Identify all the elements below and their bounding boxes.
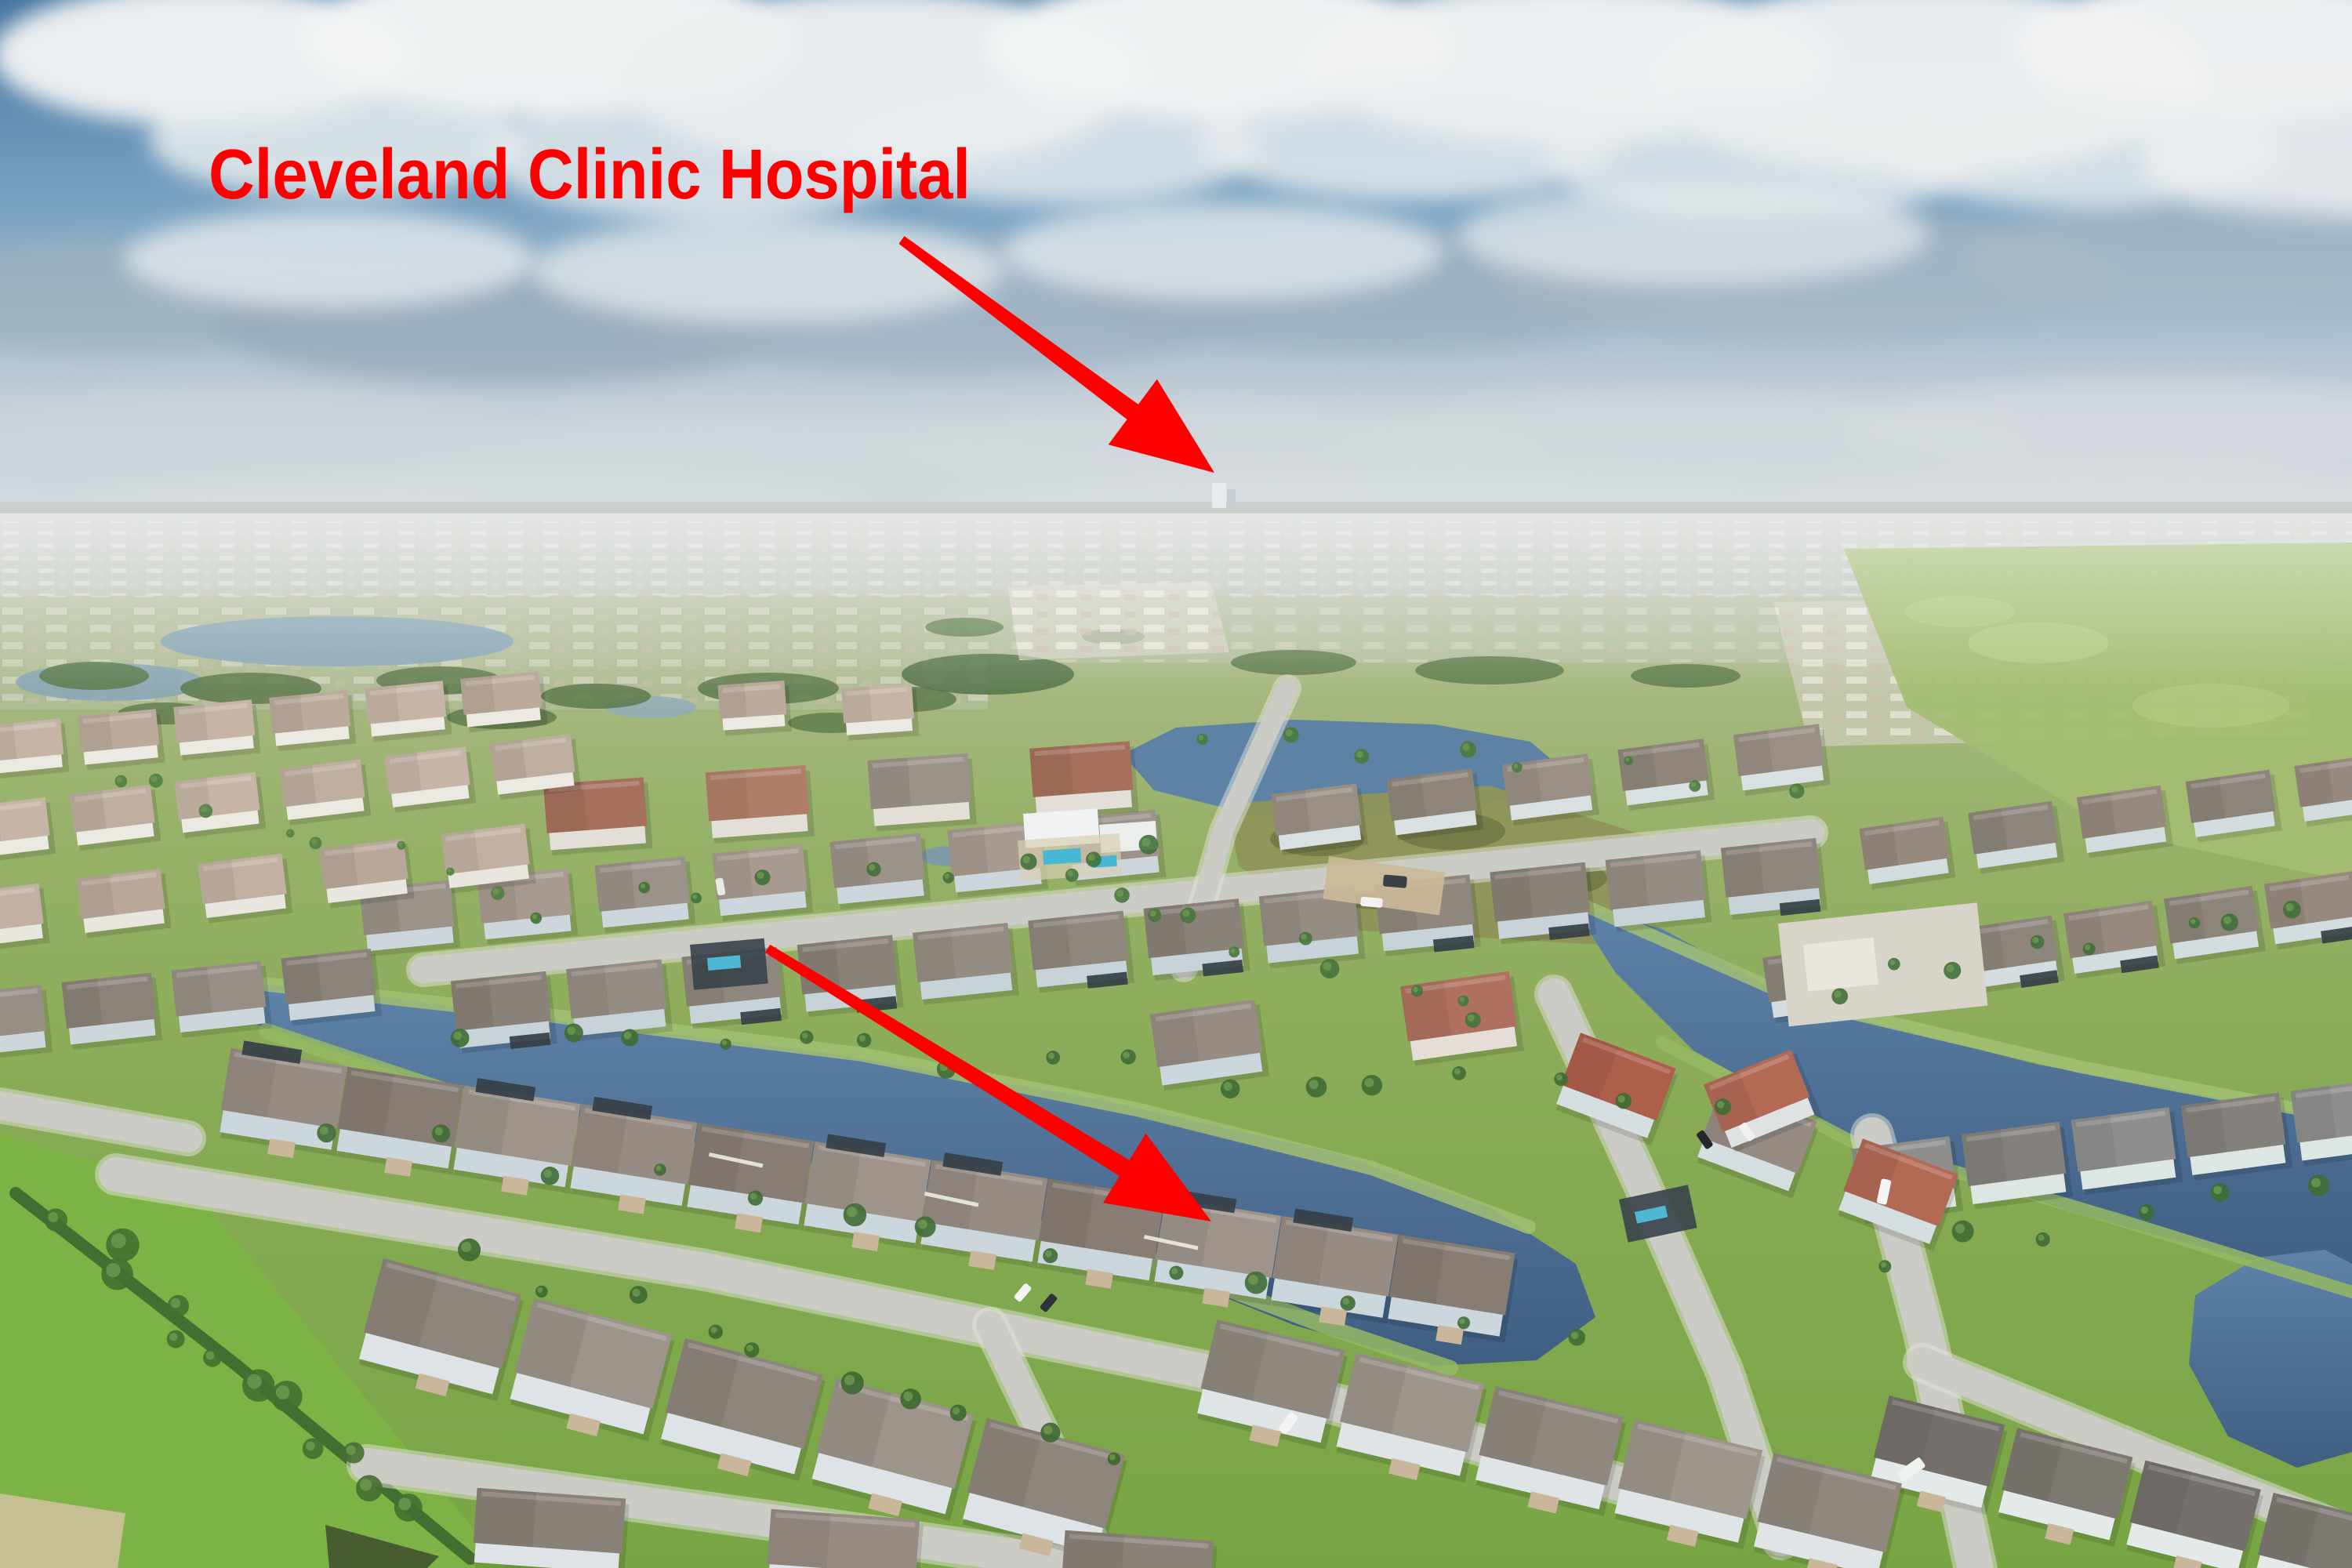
annotation-layer: Cleveland Clinic Hospital bbox=[0, 0, 2352, 1568]
annotation-label: Cleveland Clinic Hospital bbox=[209, 136, 971, 214]
annotation-arrows bbox=[765, 236, 1214, 1221]
aerial-photo: Cleveland Clinic Hospital bbox=[0, 0, 2352, 1568]
hospital-arrow bbox=[898, 236, 1214, 473]
house-arrow bbox=[765, 945, 1211, 1221]
